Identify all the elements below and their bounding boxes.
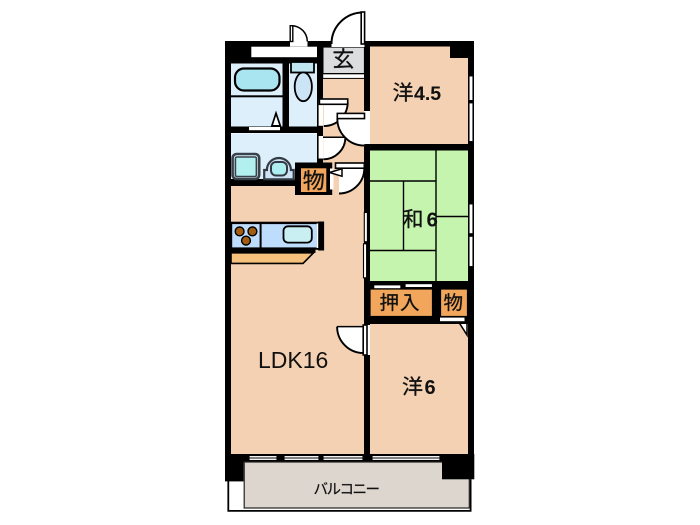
svg-text:4.5: 4.5 <box>414 83 441 105</box>
svg-text:6: 6 <box>427 209 438 232</box>
svg-text:LDK16: LDK16 <box>258 347 328 373</box>
svg-text:6: 6 <box>425 377 436 399</box>
